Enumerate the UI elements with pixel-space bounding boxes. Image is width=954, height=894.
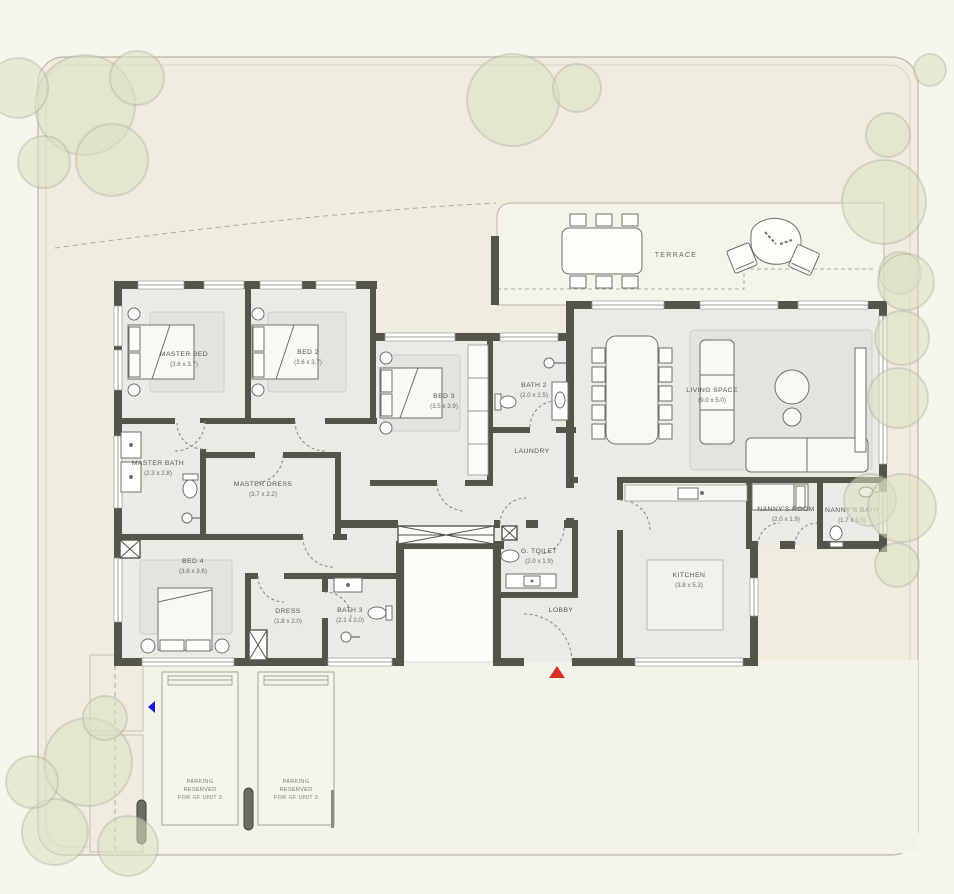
parking-stall-1: [162, 672, 238, 825]
label-bed2: BED 2: [297, 349, 319, 356]
label-laundry: LAUNDRY: [514, 448, 549, 455]
dims-nanny-room: (2.0 x 1.9): [772, 516, 800, 523]
label-kitchen: KITCHEN: [673, 572, 706, 579]
dims-master-bed: (3.6 x 3.7): [170, 361, 198, 368]
dims-g-toilet: (2.0 x 1.9): [525, 558, 553, 565]
label-bed4: BED 4: [182, 558, 204, 565]
terrace-dining-table: [562, 214, 642, 288]
tree: [866, 113, 910, 157]
dims-dress: (1.8 x 2.0): [274, 618, 302, 625]
label-dress: DRESS: [275, 608, 300, 615]
round-armchair: [775, 370, 809, 404]
tree: [98, 816, 158, 876]
label-nanny-room: NANNY'S ROOM: [757, 506, 814, 513]
parking-area: [137, 672, 334, 844]
label-lobby: LOBBY: [549, 607, 574, 614]
label-master-bath: MASTER BATH: [132, 460, 184, 467]
tree: [467, 54, 559, 146]
label-terrace: TERRACE: [655, 252, 698, 259]
label-master-dress: MASTER DRESS: [234, 481, 292, 488]
parking-stall-2: [258, 672, 334, 825]
tree: [875, 311, 929, 365]
label-bath3: BATH 3: [337, 607, 363, 614]
parking1-line2: RESERVED: [183, 787, 216, 793]
dims-bath2: (2.0 x 2.5): [520, 392, 548, 399]
floor-plan-canvas: MASTER BED (3.6 x 3.7) BED 2 (3.6 x 3.7)…: [0, 0, 954, 894]
dining-table: [606, 336, 658, 444]
label-master-bed: MASTER BED: [160, 351, 208, 358]
tree: [76, 124, 148, 196]
ottoman: [783, 408, 801, 426]
parking2-line3: FOR GF UNIT 3: [274, 795, 318, 801]
tree: [0, 58, 48, 118]
dims-bed3: (3.5 x 3.9): [430, 403, 458, 410]
tree: [868, 368, 928, 428]
tree: [868, 474, 936, 542]
label-bath2: BATH 2: [521, 382, 547, 389]
parking2-line2: RESERVED: [279, 787, 312, 793]
dims-master-bath: (2.3 x 2.8): [144, 470, 172, 477]
parking1-line1: PARKING: [187, 779, 214, 785]
dims-master-dress: (3.7 x 2.2): [249, 491, 277, 498]
dims-bath3: (2.1 x 2.0): [336, 617, 364, 624]
parking2-line1: PARKING: [283, 779, 310, 785]
tree: [553, 64, 601, 112]
tree: [6, 756, 58, 808]
bollard: [331, 790, 334, 828]
terrace-wall-spur: [491, 236, 499, 305]
tree: [875, 543, 919, 587]
kitchen-island: [647, 560, 723, 630]
dims-bed2: (3.6 x 3.7): [294, 359, 322, 366]
tv-console: [855, 348, 866, 452]
bed3-wardrobe: [468, 345, 488, 475]
dims-living-space: (9.0 x 5.0): [698, 397, 726, 404]
dims-kitchen: (3.8 x 5.3): [675, 582, 703, 589]
tree: [842, 160, 926, 244]
courtyard: [404, 549, 493, 662]
dims-bed4: (3.8 x 3.6): [179, 568, 207, 575]
tree: [83, 696, 127, 740]
parking1-line3: FOR GF UNIT 3: [178, 795, 222, 801]
floor-plan-svg: MASTER BED (3.6 x 3.7) BED 2 (3.6 x 3.7)…: [0, 0, 954, 894]
tree: [878, 254, 934, 310]
label-bed3: BED 3: [433, 393, 455, 400]
tree: [110, 51, 164, 105]
label-g-toilet: G. TOILET: [521, 548, 557, 555]
tree: [18, 136, 70, 188]
tree: [914, 54, 946, 86]
label-living-space: LIVING SPACE: [686, 387, 738, 394]
bollard: [244, 788, 253, 830]
